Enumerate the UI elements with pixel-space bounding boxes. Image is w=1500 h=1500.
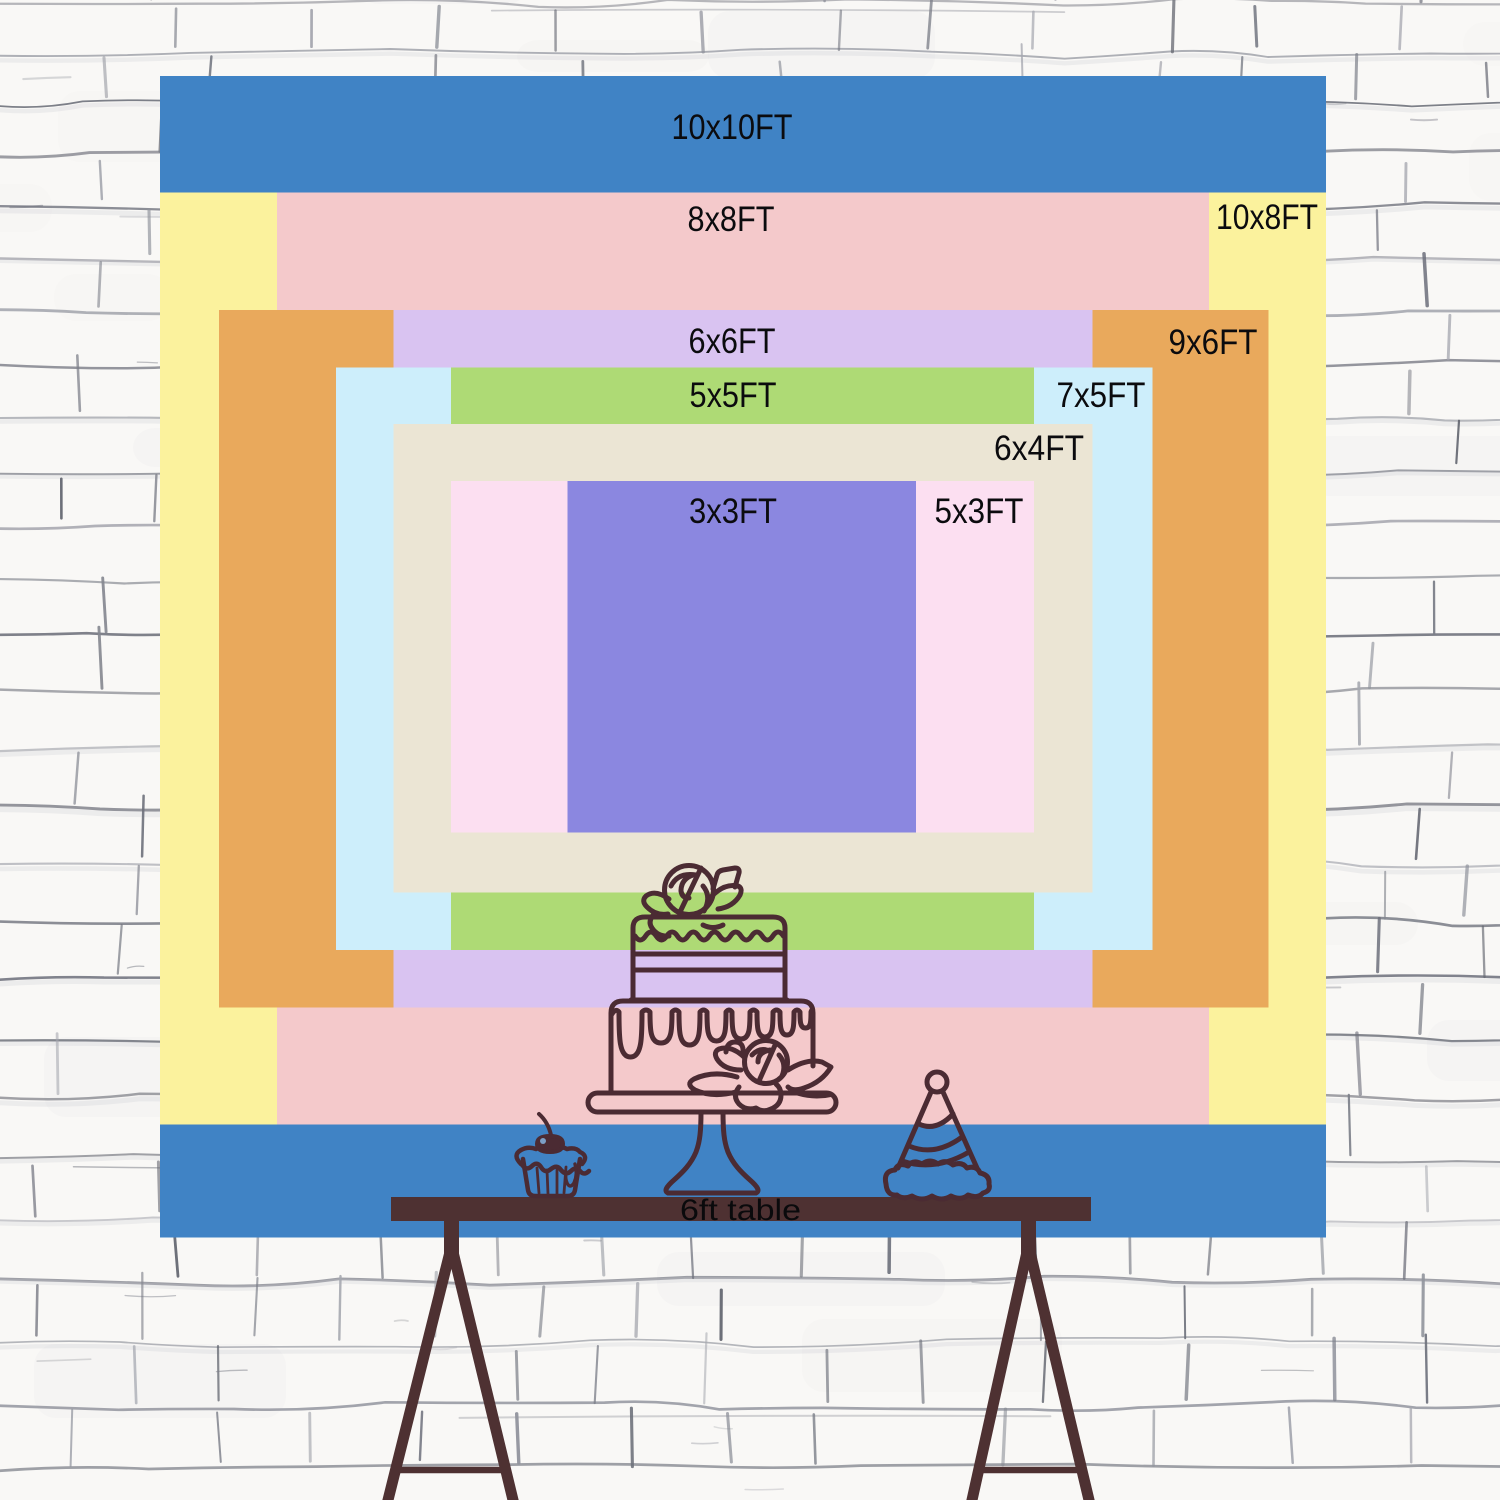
svg-text:5x3FT: 5x3FT [935,492,1024,531]
svg-text:6x6FT: 6x6FT [689,322,776,361]
svg-text:9x6FT: 9x6FT [1169,323,1258,362]
svg-text:6ft table: 6ft table [680,1194,801,1227]
svg-text:3x3FT: 3x3FT [689,492,777,531]
svg-text:7x5FT: 7x5FT [1057,376,1146,415]
svg-text:10x10FT: 10x10FT [672,108,793,147]
svg-text:8x8FT: 8x8FT [688,200,775,239]
svg-text:6x4FT: 6x4FT [994,429,1084,468]
svg-text:5x5FT: 5x5FT [690,376,777,415]
svg-text:10x8FT: 10x8FT [1216,198,1318,237]
